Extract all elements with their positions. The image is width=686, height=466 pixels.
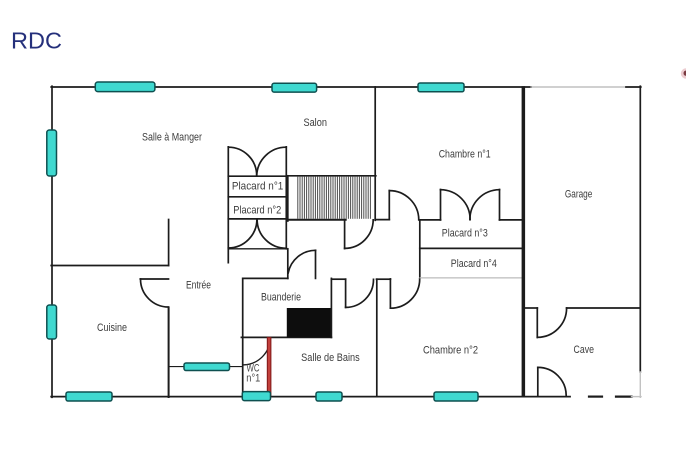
svg-text:Cuisine: Cuisine: [97, 322, 127, 334]
svg-text:Salon: Salon: [303, 117, 327, 129]
svg-text:n°1: n°1: [246, 372, 260, 384]
svg-text:Chambre n°1: Chambre n°1: [439, 148, 491, 160]
svg-text:Salle de Bains: Salle de Bains: [301, 352, 360, 364]
svg-text:Placard n°2: Placard n°2: [233, 205, 281, 217]
svg-text:Placard n°1: Placard n°1: [232, 180, 284, 192]
svg-text:Placard n°3: Placard n°3: [442, 227, 488, 239]
svg-text:Salle à Manger: Salle à Manger: [142, 132, 202, 144]
svg-text:Entrée: Entrée: [186, 279, 211, 291]
svg-text:Chambre n°2: Chambre n°2: [423, 344, 478, 356]
svg-text:Garage: Garage: [565, 189, 593, 201]
svg-text:Placard n°4: Placard n°4: [451, 258, 497, 270]
svg-text:Buanderie: Buanderie: [261, 292, 301, 304]
svg-text:Cave: Cave: [574, 344, 595, 356]
svg-text:RDC: RDC: [11, 28, 62, 54]
